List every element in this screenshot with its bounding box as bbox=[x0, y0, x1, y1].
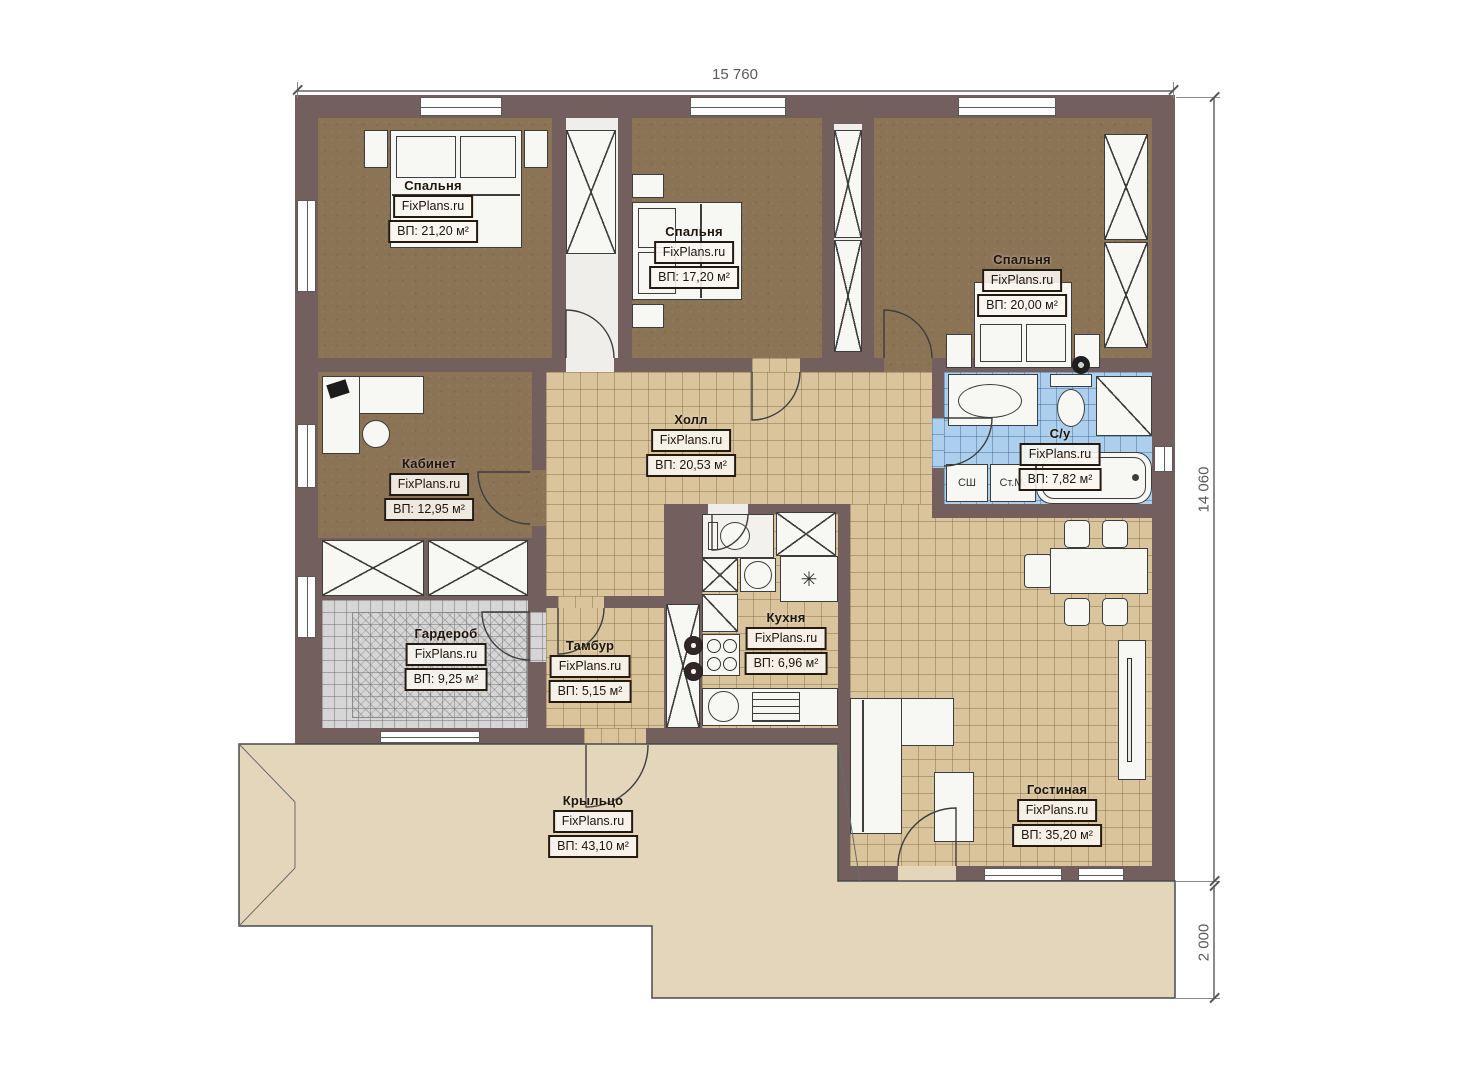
nightstand bbox=[632, 174, 664, 198]
room-area: ВП: 17,20 м² bbox=[649, 266, 739, 289]
window-bathroom-right bbox=[1154, 446, 1173, 472]
door-gap-wardrobe bbox=[530, 612, 546, 662]
vent-pipe-icon bbox=[1072, 356, 1090, 374]
room-area: ВП: 9,25 м² bbox=[405, 668, 488, 691]
dimension-porch-right: 2 000 bbox=[1196, 911, 1213, 975]
door-gap-bedroom3 bbox=[884, 358, 932, 372]
closet-wc bbox=[776, 512, 836, 556]
room-name: Кабинет bbox=[402, 456, 456, 471]
room-label-porch: Крыльцо FixPlans.ru ВП: 43,10 м² bbox=[548, 793, 638, 858]
sofa-back-line bbox=[862, 700, 864, 832]
window-office-left bbox=[297, 424, 316, 488]
dining-chair bbox=[1102, 520, 1128, 548]
kitchen-corner-cabinet bbox=[702, 594, 738, 632]
room-brand: FixPlans.ru bbox=[746, 627, 827, 650]
door-gap-bathroom bbox=[932, 418, 944, 468]
nightstand bbox=[946, 334, 972, 368]
tv-screen bbox=[1127, 658, 1132, 762]
room-name: Гостиная bbox=[1027, 782, 1087, 797]
dimension-height-right: 14 060 bbox=[1196, 458, 1213, 522]
room-area: ВП: 7,82 м² bbox=[1019, 468, 1102, 491]
dryer-box: СШ bbox=[946, 464, 988, 502]
room-label-kitchen: Кухня FixPlans.ru ВП: 6,96 м² bbox=[745, 610, 828, 675]
tv-stand bbox=[1118, 640, 1146, 780]
window-living-bottom1 bbox=[984, 868, 1062, 881]
dimension-line-top bbox=[297, 90, 1173, 92]
room-name: Крыльцо bbox=[563, 793, 624, 808]
closet-wardrobe-right bbox=[428, 540, 528, 596]
coffee-table bbox=[934, 772, 974, 842]
door-gap-office bbox=[530, 470, 546, 526]
room-brand: FixPlans.ru bbox=[1017, 799, 1098, 822]
room-name: С/у bbox=[1050, 426, 1071, 441]
toilet-tank-small bbox=[708, 522, 718, 550]
room-area: ВП: 12,95 м² bbox=[384, 498, 474, 521]
dryer-label: СШ bbox=[958, 477, 976, 489]
room-brand: FixPlans.ru bbox=[553, 810, 634, 833]
room-label-living: Гостиная FixPlans.ru ВП: 35,20 м² bbox=[1012, 782, 1102, 847]
room-name: Спальня bbox=[993, 252, 1051, 267]
window-bedroom1-top bbox=[420, 97, 502, 116]
closet-bedroom3-top bbox=[1104, 134, 1148, 240]
room-label-bathroom: С/у FixPlans.ru ВП: 7,82 м² bbox=[1019, 426, 1102, 491]
dimension-line-porch bbox=[1213, 886, 1215, 998]
room-label-office: Кабинет FixPlans.ru ВП: 12,95 м² bbox=[384, 456, 474, 521]
window-bedroom3-top bbox=[958, 97, 1056, 116]
door-gap-bedroom2 bbox=[752, 358, 800, 372]
room-area: ВП: 20,00 м² bbox=[977, 294, 1067, 317]
toilet-bowl bbox=[1057, 389, 1085, 427]
door-gap-wc bbox=[708, 504, 748, 514]
room-area: ВП: 5,15 м² bbox=[549, 680, 632, 703]
room-label-hall: Холл FixPlans.ru ВП: 20,53 м² bbox=[646, 412, 736, 477]
room-area: ВП: 6,96 м² bbox=[745, 652, 828, 675]
pillow bbox=[460, 136, 516, 178]
stove-burner bbox=[707, 657, 721, 671]
closet-wardrobe-left bbox=[322, 540, 424, 596]
bathtub-drain bbox=[1132, 474, 1139, 481]
room-brand: FixPlans.ru bbox=[654, 241, 735, 264]
door-gap-living-porch bbox=[898, 866, 956, 883]
window-living-bottom2 bbox=[1078, 868, 1124, 881]
dining-chair bbox=[1064, 598, 1090, 626]
room-brand: FixPlans.ru bbox=[651, 429, 732, 452]
window-bedroom1-left bbox=[297, 200, 316, 292]
room-name: Холл bbox=[674, 412, 707, 427]
floor-plan: ✳ СШ Ст.М. bbox=[0, 0, 1473, 1080]
room-brand: FixPlans.ru bbox=[982, 269, 1063, 292]
kitchen-sink-round bbox=[744, 561, 772, 589]
room-name: Тамбур bbox=[566, 638, 614, 653]
room-label-bedroom2: Спальня FixPlans.ru ВП: 17,20 м² bbox=[649, 224, 739, 289]
high-chair bbox=[1024, 554, 1052, 588]
closet-mid-top bbox=[834, 130, 862, 238]
room-area: ВП: 21,20 м² bbox=[388, 220, 478, 243]
dining-chair bbox=[1102, 598, 1128, 626]
window-wardrobe-bottom bbox=[380, 731, 480, 743]
nightstand bbox=[632, 304, 664, 328]
room-brand: FixPlans.ru bbox=[406, 643, 487, 666]
fridge-icon: ✳ bbox=[780, 556, 838, 602]
nightstand bbox=[364, 130, 388, 168]
room-name: Спальня bbox=[665, 224, 723, 239]
stove-knob bbox=[684, 636, 703, 655]
closet-mid-bottom bbox=[834, 240, 862, 352]
door-gap-bedroom1 bbox=[566, 358, 614, 372]
dining-table bbox=[1050, 548, 1148, 594]
room-name: Гардероб bbox=[414, 626, 477, 641]
toilet-bowl-small bbox=[720, 522, 750, 550]
room-name: Спальня bbox=[404, 178, 462, 193]
toilet-tank bbox=[1050, 374, 1092, 387]
kitchen-cabinet-x bbox=[702, 558, 738, 592]
room-label-vestibule: Тамбур FixPlans.ru ВП: 5,15 м² bbox=[549, 638, 632, 703]
room-name: Кухня bbox=[766, 610, 805, 625]
kitchen-sink-bottom bbox=[708, 691, 739, 722]
pillow bbox=[980, 324, 1022, 362]
dimension-width-top: 15 760 bbox=[712, 66, 758, 83]
oven bbox=[752, 692, 800, 722]
stove-burner bbox=[723, 639, 737, 653]
room-brand: FixPlans.ru bbox=[1020, 443, 1101, 466]
dimension-line-right bbox=[1213, 97, 1215, 881]
room-brand: FixPlans.ru bbox=[393, 195, 474, 218]
room-label-bedroom1: Спальня FixPlans.ru ВП: 21,20 м² bbox=[388, 178, 478, 243]
shower bbox=[1096, 376, 1152, 436]
room-brand: FixPlans.ru bbox=[550, 655, 631, 678]
door-gap-entrance bbox=[584, 728, 646, 745]
stove-burner bbox=[723, 657, 737, 671]
wall-bathroom-south bbox=[932, 504, 1152, 518]
room-brand: FixPlans.ru bbox=[389, 473, 470, 496]
room-area: ВП: 20,53 м² bbox=[646, 454, 736, 477]
office-chair bbox=[362, 420, 390, 448]
dining-chair bbox=[1064, 520, 1090, 548]
window-bedroom2-top bbox=[690, 97, 786, 116]
bathroom-sink-oval bbox=[958, 384, 1022, 418]
pillow bbox=[1026, 324, 1066, 362]
closet-corridor bbox=[566, 130, 616, 254]
door-gap-tambur bbox=[558, 596, 604, 608]
sofa-body bbox=[850, 698, 902, 834]
pillow bbox=[396, 136, 456, 178]
room-label-wardrobe: Гардероб FixPlans.ru ВП: 9,25 м² bbox=[405, 626, 488, 691]
hall-floor bbox=[546, 372, 932, 504]
nightstand bbox=[524, 130, 548, 168]
stove-burner bbox=[707, 639, 721, 653]
room-area: ВП: 35,20 м² bbox=[1012, 824, 1102, 847]
room-area: ВП: 43,10 м² bbox=[548, 835, 638, 858]
room-label-bedroom3: Спальня FixPlans.ru ВП: 20,00 м² bbox=[977, 252, 1067, 317]
stove-knob bbox=[684, 662, 703, 681]
window-wardrobe-left bbox=[297, 576, 316, 638]
closet-bedroom3-bottom bbox=[1104, 242, 1148, 348]
